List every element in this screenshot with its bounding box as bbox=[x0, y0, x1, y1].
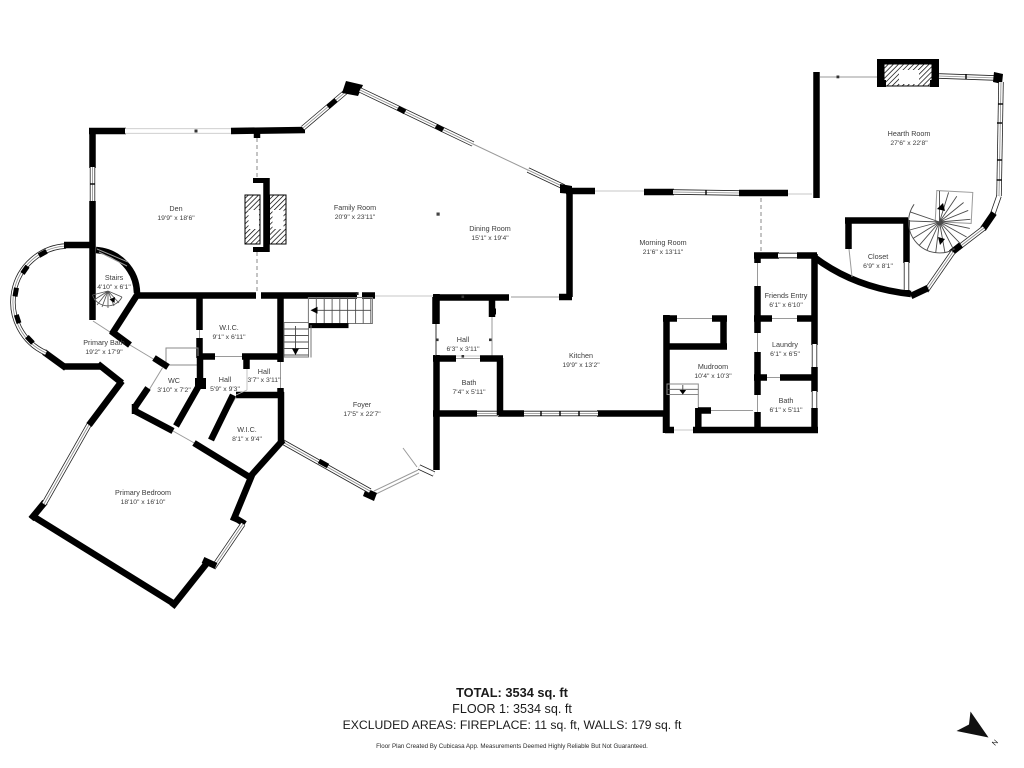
svg-text:Mudroom: Mudroom bbox=[698, 362, 728, 371]
svg-text:27'6" x 22'8": 27'6" x 22'8" bbox=[890, 140, 928, 147]
svg-text:Stairs: Stairs bbox=[105, 273, 124, 282]
svg-text:Hall: Hall bbox=[219, 375, 232, 384]
svg-text:10'4" x 10'3": 10'4" x 10'3" bbox=[694, 373, 732, 380]
svg-text:Dining Room: Dining Room bbox=[469, 224, 511, 233]
svg-text:FLOOR 1: 3534 sq. ft: FLOOR 1: 3534 sq. ft bbox=[452, 702, 572, 716]
svg-text:Bath: Bath bbox=[462, 378, 477, 387]
svg-text:6'3" x 3'11": 6'3" x 3'11" bbox=[447, 346, 481, 353]
svg-text:Hearth Room: Hearth Room bbox=[888, 129, 931, 138]
svg-text:Den: Den bbox=[169, 204, 182, 213]
svg-text:Morning Room: Morning Room bbox=[639, 238, 686, 247]
svg-text:3'10" x 7'2": 3'10" x 7'2" bbox=[157, 387, 191, 394]
svg-text:Laundry: Laundry bbox=[772, 340, 798, 349]
svg-text:8'1" x 9'4": 8'1" x 9'4" bbox=[232, 436, 262, 443]
svg-text:21'6" x 13'11": 21'6" x 13'11" bbox=[643, 249, 684, 256]
svg-text:9'1" x 6'11": 9'1" x 6'11" bbox=[213, 334, 247, 341]
svg-text:5'9" x 9'3": 5'9" x 9'3" bbox=[210, 386, 240, 393]
svg-text:19'9" x 18'6": 19'9" x 18'6" bbox=[157, 215, 195, 222]
svg-text:Kitchen: Kitchen bbox=[569, 351, 593, 360]
svg-text:Floor Plan Created By Cubicasa: Floor Plan Created By Cubicasa App. Meas… bbox=[376, 743, 648, 750]
svg-text:WC: WC bbox=[168, 376, 180, 385]
svg-text:Hall: Hall bbox=[258, 367, 271, 376]
svg-text:Bath: Bath bbox=[779, 396, 794, 405]
svg-text:Foyer: Foyer bbox=[353, 400, 372, 409]
svg-text:Primary Bedroom: Primary Bedroom bbox=[115, 488, 171, 497]
svg-text:Family Room: Family Room bbox=[334, 203, 376, 212]
svg-text:6'1" x 6'10": 6'1" x 6'10" bbox=[769, 302, 803, 309]
svg-text:6'1" x 5'11": 6'1" x 5'11" bbox=[770, 407, 804, 414]
svg-text:W.I.C.: W.I.C. bbox=[219, 323, 239, 332]
svg-text:19'9" x 13'2": 19'9" x 13'2" bbox=[562, 362, 600, 369]
svg-text:Friends Entry: Friends Entry bbox=[765, 291, 808, 300]
svg-text:3'7" x 3'11": 3'7" x 3'11" bbox=[248, 377, 282, 384]
svg-text:19'2" x 17'9": 19'2" x 17'9" bbox=[85, 349, 123, 356]
svg-text:TOTAL: 3534 sq. ft: TOTAL: 3534 sq. ft bbox=[456, 685, 569, 700]
svg-text:EXCLUDED AREAS: FIREPLACE: 11: EXCLUDED AREAS: FIREPLACE: 11 sq. ft, WA… bbox=[343, 718, 682, 732]
svg-text:7'4" x 5'11": 7'4" x 5'11" bbox=[453, 389, 487, 396]
svg-text:Hall: Hall bbox=[457, 335, 470, 344]
svg-text:15'1" x 19'4": 15'1" x 19'4" bbox=[471, 235, 509, 242]
svg-text:17'5" x 22'7": 17'5" x 22'7" bbox=[343, 411, 381, 418]
svg-text:6'1" x 6'5": 6'1" x 6'5" bbox=[770, 351, 800, 358]
svg-text:4'10" x 6'1": 4'10" x 6'1" bbox=[97, 284, 131, 291]
svg-text:Closet: Closet bbox=[868, 252, 888, 261]
svg-text:6'9" x 8'1": 6'9" x 8'1" bbox=[863, 263, 893, 270]
svg-text:Primary Bath: Primary Bath bbox=[83, 338, 125, 347]
svg-text:18'10" x 16'10": 18'10" x 16'10" bbox=[121, 499, 166, 506]
svg-text:20'9" x 23'11": 20'9" x 23'11" bbox=[335, 214, 376, 221]
svg-text:W.I.C.: W.I.C. bbox=[237, 425, 257, 434]
